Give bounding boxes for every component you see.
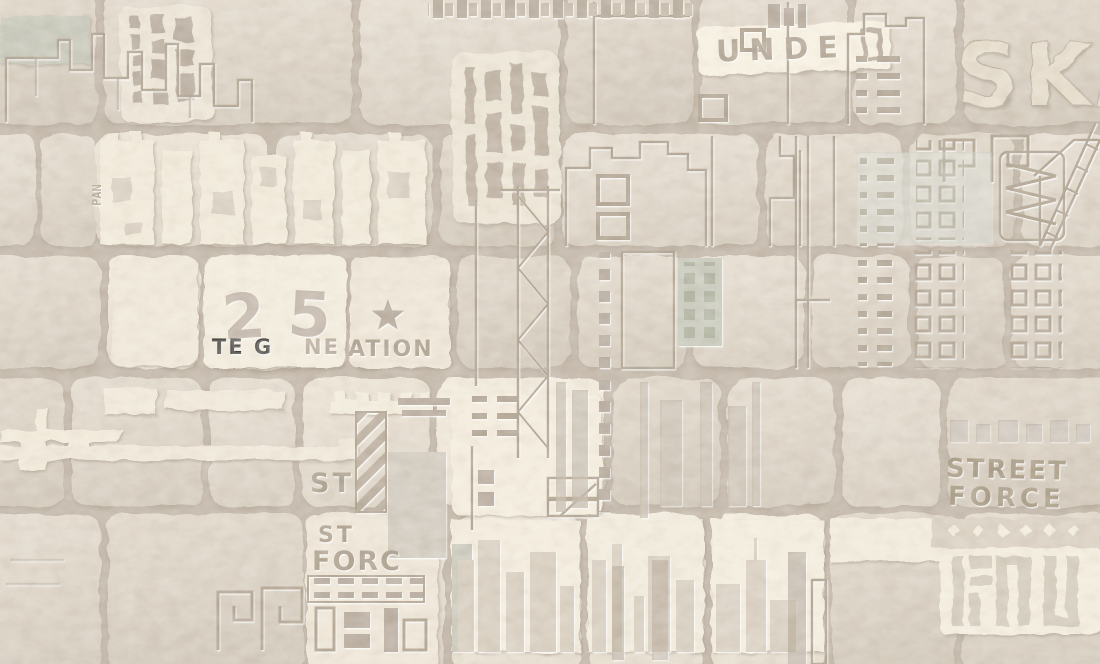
grain-overlay-dark <box>0 0 1100 664</box>
wallpaper-image: SKA <box>0 0 1100 664</box>
brick-wall-canvas: SKA <box>0 0 1100 664</box>
